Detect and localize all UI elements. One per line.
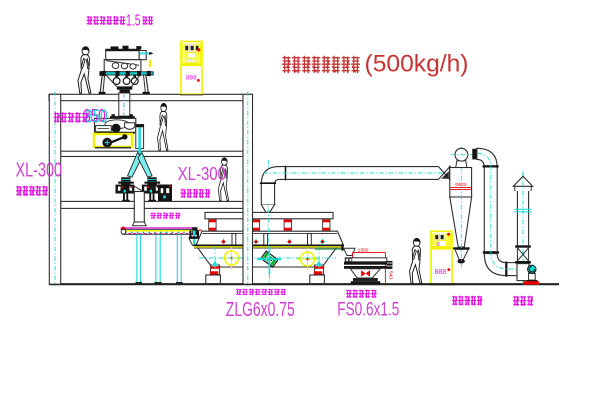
svg-text:540: 540 xyxy=(388,271,394,279)
svg-text:XL-300: XL-300 xyxy=(16,160,63,182)
svg-text:888: 888 xyxy=(186,74,197,81)
svg-text:(500kg/h): (500kg/h) xyxy=(365,51,469,78)
svg-text:FS0.6x1.5: FS0.6x1.5 xyxy=(337,299,399,321)
svg-text:XL-300: XL-300 xyxy=(178,163,226,184)
svg-text:ZLG6x0.75: ZLG6x0.75 xyxy=(226,299,295,321)
svg-text:888: 888 xyxy=(435,269,447,276)
svg-text:1500: 1500 xyxy=(358,248,369,254)
svg-text:1.5: 1.5 xyxy=(126,12,141,29)
svg-text:8: 8 xyxy=(437,242,440,248)
svg-text:350: 350 xyxy=(85,106,108,127)
